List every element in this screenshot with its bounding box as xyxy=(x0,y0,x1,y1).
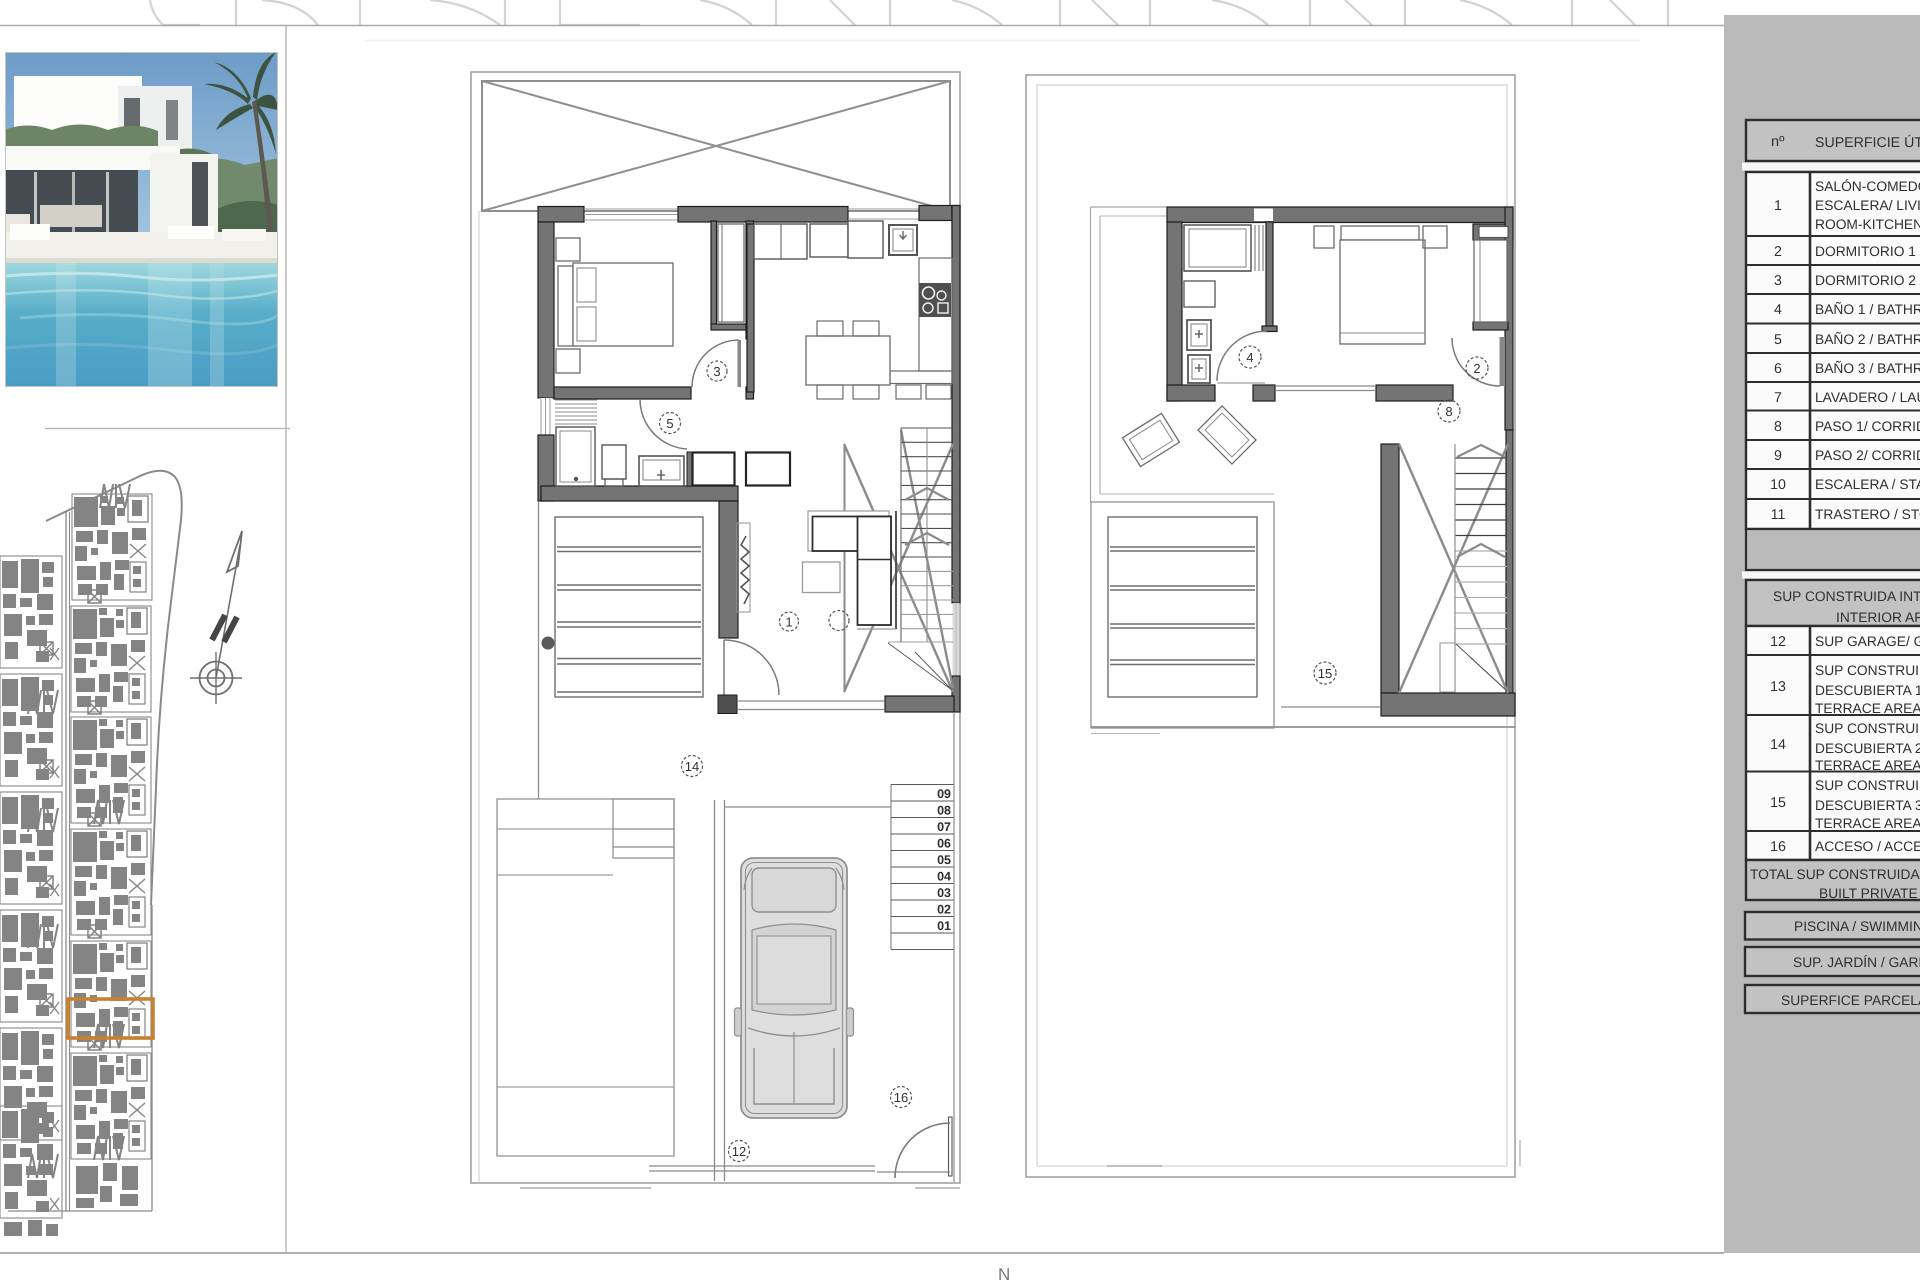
svg-text:04: 04 xyxy=(937,870,951,884)
svg-text:1: 1 xyxy=(785,615,792,630)
svg-text:N: N xyxy=(998,1265,1010,1280)
svg-text:ESCALERA/ LIVING-DINING: ESCALERA/ LIVING-DINING xyxy=(1815,198,1920,213)
svg-text:SALÓN-COMEDOR-COCINA: SALÓN-COMEDOR-COCINA xyxy=(1815,179,1920,194)
svg-text:TERRACE AREA 1: TERRACE AREA 1 xyxy=(1815,701,1920,716)
svg-text:2: 2 xyxy=(1473,361,1480,376)
svg-text:11: 11 xyxy=(1771,507,1786,523)
svg-text:06: 06 xyxy=(937,837,951,851)
svg-text:4: 4 xyxy=(1246,350,1253,365)
svg-text:6: 6 xyxy=(1774,361,1782,377)
svg-text:ESCALERA / STAIRS: ESCALERA / STAIRS xyxy=(1815,477,1920,492)
svg-text:16: 16 xyxy=(1770,839,1786,855)
svg-text:2: 2 xyxy=(1774,244,1782,260)
svg-text:SUP CONSTRUIDA: SUP CONSTRUIDA xyxy=(1815,663,1920,678)
svg-text:ROOM-KITCHEN-STAIRS: ROOM-KITCHEN-STAIRS xyxy=(1815,217,1920,232)
svg-text:09: 09 xyxy=(937,787,951,801)
svg-text:DESCUBIERTA 3 /: DESCUBIERTA 3 / xyxy=(1815,798,1920,813)
svg-text:3: 3 xyxy=(1774,273,1782,289)
svg-text:15: 15 xyxy=(1318,666,1332,681)
svg-text:DORMITORIO 2 / BEDROOM: DORMITORIO 2 / BEDROOM xyxy=(1815,273,1920,288)
svg-text:12: 12 xyxy=(1770,634,1786,650)
svg-text:SUP CONSTRUIDA: SUP CONSTRUIDA xyxy=(1815,721,1920,736)
svg-text:08: 08 xyxy=(937,804,951,818)
svg-text:SUPERFICIE ÚTILE: SUPERFICIE ÚTILE xyxy=(1815,134,1920,151)
svg-text:01: 01 xyxy=(937,919,951,933)
svg-text:5: 5 xyxy=(1774,332,1782,348)
svg-text:16: 16 xyxy=(894,1090,908,1105)
svg-text:SUP. JARDÍN / GARDEN: SUP. JARDÍN / GARDEN xyxy=(1793,955,1920,970)
svg-text:TERRACE AREA 3: TERRACE AREA 3 xyxy=(1815,816,1920,831)
svg-text:4: 4 xyxy=(1774,302,1782,318)
svg-text:1: 1 xyxy=(1774,198,1782,214)
svg-text:PASO 2/ CORRIDOR 2: PASO 2/ CORRIDOR 2 xyxy=(1815,448,1920,463)
svg-text:SUP CONSTRUIDA INTERIOR: SUP CONSTRUIDA INTERIOR xyxy=(1773,589,1920,604)
svg-text:INTERIOR AREA: INTERIOR AREA xyxy=(1836,610,1920,625)
svg-text:SUPERFICE PARCELA /: SUPERFICE PARCELA / xyxy=(1781,993,1920,1008)
svg-text:8: 8 xyxy=(1774,419,1782,435)
svg-text:12: 12 xyxy=(732,1144,746,1159)
svg-text:13: 13 xyxy=(1770,679,1786,695)
svg-text:LAVADERO / LAUNDRY: LAVADERO / LAUNDRY xyxy=(1815,390,1920,405)
svg-text:TERRACE AREA 2: TERRACE AREA 2 xyxy=(1815,758,1920,773)
svg-text:07: 07 xyxy=(937,820,951,834)
svg-text:nº: nº xyxy=(1771,134,1785,150)
svg-text:14: 14 xyxy=(685,759,699,774)
svg-text:02: 02 xyxy=(937,903,951,917)
svg-text:DESCUBIERTA 1 /: DESCUBIERTA 1 / xyxy=(1815,683,1920,698)
svg-text:DESCUBIERTA 2 /: DESCUBIERTA 2 / xyxy=(1815,741,1920,756)
svg-text:DORMITORIO 1 / BEDROOM: DORMITORIO 1 / BEDROOM xyxy=(1815,244,1920,259)
svg-text:BAÑO 2 / BATHROOM 2: BAÑO 2 / BATHROOM 2 xyxy=(1815,331,1920,347)
svg-text:15: 15 xyxy=(1770,795,1786,811)
svg-text:BUILT PRIVATE AREA: BUILT PRIVATE AREA xyxy=(1819,886,1920,901)
svg-text:3: 3 xyxy=(713,364,720,379)
svg-text:ACCESO / ACCESS: ACCESO / ACCESS xyxy=(1815,839,1920,854)
svg-text:7: 7 xyxy=(1774,390,1782,406)
svg-text:10: 10 xyxy=(1770,477,1786,493)
svg-text:05: 05 xyxy=(937,853,951,867)
svg-text:9: 9 xyxy=(1774,448,1782,464)
svg-text:TRASTERO / STORAGE: TRASTERO / STORAGE xyxy=(1815,507,1920,522)
svg-text:PASO 1/ CORRIDOR 1: PASO 1/ CORRIDOR 1 xyxy=(1815,419,1920,434)
svg-text:14: 14 xyxy=(1770,737,1786,753)
svg-text:TOTAL SUP CONSTRUIDA PRIV: TOTAL SUP CONSTRUIDA PRIV xyxy=(1750,867,1920,882)
svg-text:SUP CONSTRUIDA: SUP CONSTRUIDA xyxy=(1815,778,1920,793)
svg-text:PISCINA / SWIMMING: PISCINA / SWIMMING xyxy=(1794,919,1920,934)
svg-text:SUP GARAGE/ GARAGE: SUP GARAGE/ GARAGE xyxy=(1815,634,1920,649)
svg-text:8: 8 xyxy=(1445,404,1452,419)
svg-text:BAÑO 3 / BATHROOM 3: BAÑO 3 / BATHROOM 3 xyxy=(1815,360,1920,376)
svg-text:5: 5 xyxy=(666,416,673,431)
svg-text:03: 03 xyxy=(937,886,951,900)
svg-text:BAÑO 1 / BATHROOM 1: BAÑO 1 / BATHROOM 1 xyxy=(1815,301,1920,317)
